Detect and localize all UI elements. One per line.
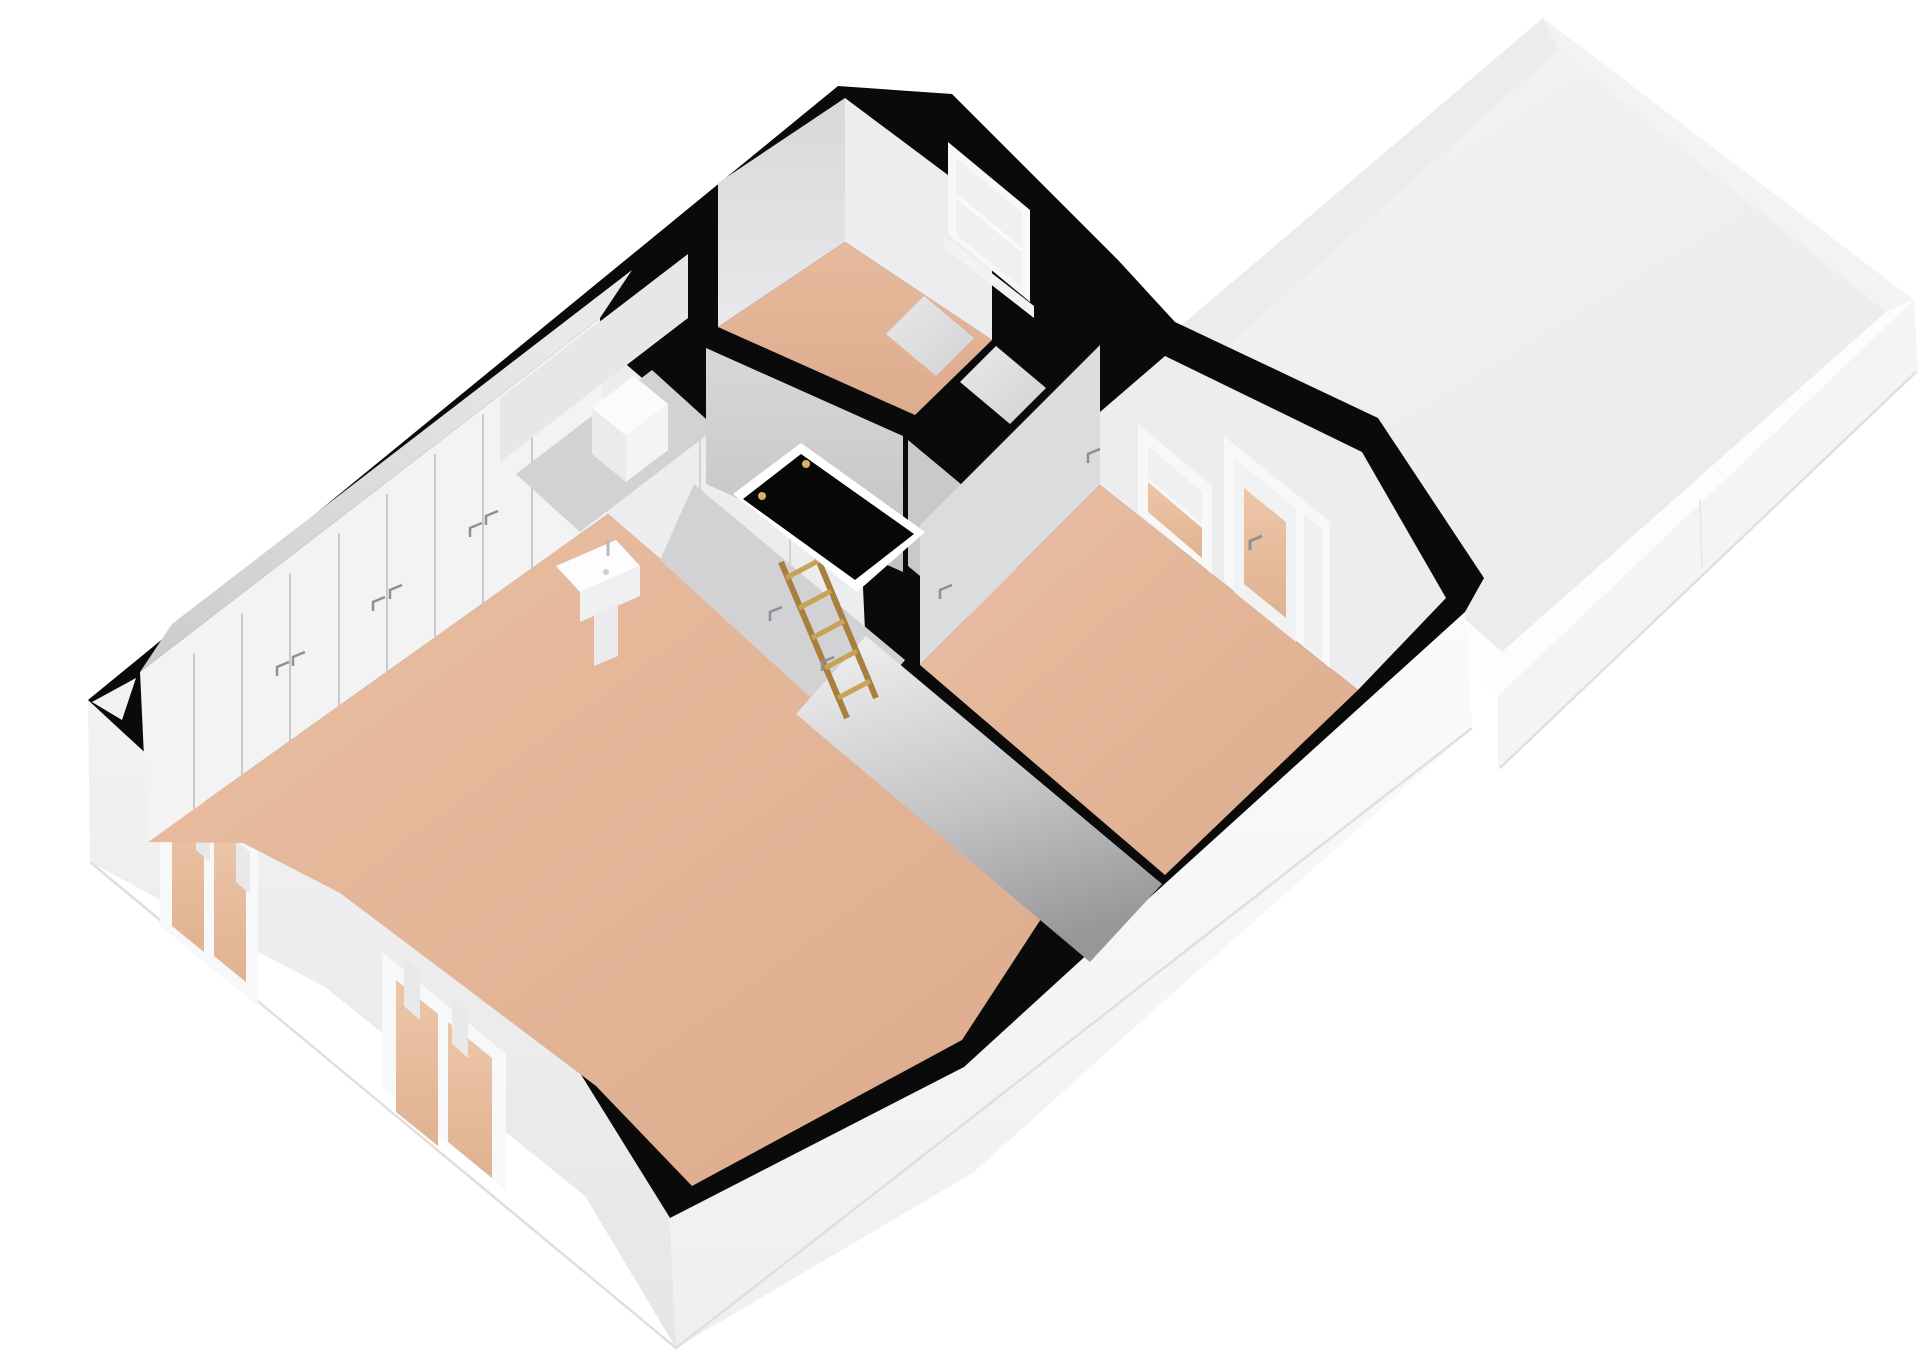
- floorplan-3d-render: [0, 0, 1920, 1358]
- floorplan-stage: [0, 0, 1920, 1358]
- hatch-hinge: [758, 492, 766, 500]
- basin-drain: [603, 569, 609, 575]
- door-sidelight: [1304, 514, 1322, 660]
- basin-pedestal: [594, 604, 618, 666]
- hatch-hinge: [802, 460, 810, 468]
